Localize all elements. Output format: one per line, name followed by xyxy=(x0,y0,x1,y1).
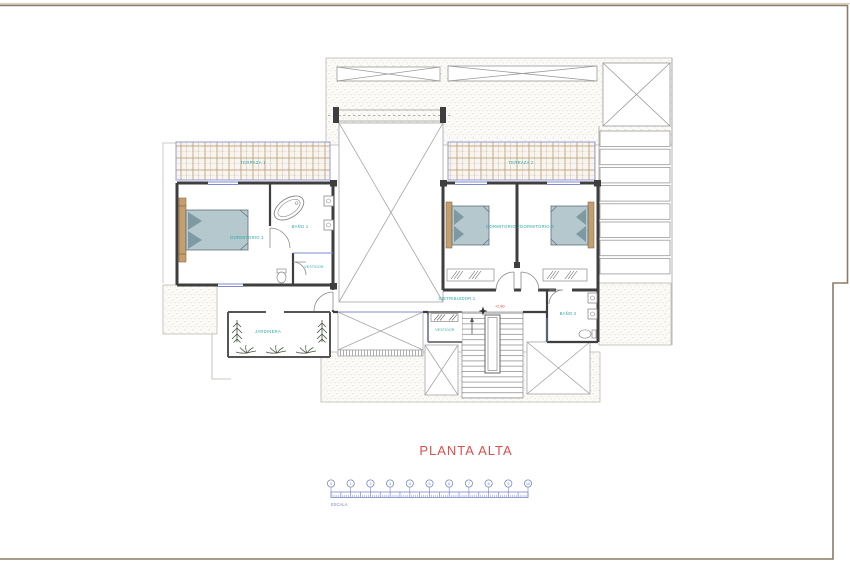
bed-1-icon xyxy=(179,198,248,262)
skylight-square xyxy=(603,63,670,126)
staircase xyxy=(462,312,523,398)
bed-3-icon xyxy=(551,202,594,248)
floor-plan-canvas: TERRAZA 1 TERRAZA 2 DORMITORIO 1 BAÑO 1 … xyxy=(0,0,850,570)
bed-2-icon xyxy=(446,202,489,248)
label-terraza-2: TERRAZA 2 xyxy=(508,160,533,165)
label-vestidor-1: VESTIDOR xyxy=(304,265,324,269)
toilet-icon xyxy=(277,269,286,283)
bathtub-icon xyxy=(270,191,308,225)
label-jardinera: JARDINERA xyxy=(255,329,281,334)
terrace-left-patch xyxy=(163,285,217,334)
sink-icon xyxy=(324,220,334,230)
svg-text:6: 6 xyxy=(448,481,450,486)
svg-text:7: 7 xyxy=(468,481,470,486)
sink-icon xyxy=(588,309,597,319)
sink-icon xyxy=(588,293,597,303)
room-jardinera xyxy=(228,312,330,357)
roof-edge-left xyxy=(163,143,176,283)
drawing-sheet: TERRAZA 1 TERRAZA 2 DORMITORIO 1 BAÑO 1 … xyxy=(0,0,850,570)
svg-text:1: 1 xyxy=(350,481,352,486)
column xyxy=(333,107,339,123)
wardrobes xyxy=(447,269,587,281)
toilet-icon xyxy=(579,330,596,338)
label-vestidor-2: VESTIDOR xyxy=(435,328,455,332)
label-dormitorio-1: DORMITORIO 1 xyxy=(230,235,264,240)
railing xyxy=(338,350,423,356)
label-dormitorio-3: DORMITORIO 3 xyxy=(520,224,554,229)
void-small-right xyxy=(527,342,590,394)
roof-right-patch xyxy=(599,283,671,345)
sink-icon xyxy=(324,196,334,206)
scale-label: ESCALA xyxy=(331,502,348,507)
label-bano-2: BAÑO 2 xyxy=(560,311,577,316)
label-bano-1: BAÑO 1 xyxy=(292,224,309,229)
label-distribuidor: DISTRIBUIDOR 1 xyxy=(438,296,475,301)
plan-title: PLANTA ALTA xyxy=(419,443,512,458)
svg-text:3: 3 xyxy=(389,481,391,486)
label-dormitorio-2: DORMITORIO 2 xyxy=(486,224,520,229)
column xyxy=(440,107,446,123)
bathroom-1-fixtures xyxy=(270,191,334,283)
svg-text:8: 8 xyxy=(488,481,490,486)
room-vestidor-2 xyxy=(428,312,462,342)
louver-slats xyxy=(600,131,670,274)
bathroom-2-fixtures xyxy=(579,293,597,338)
svg-text:9: 9 xyxy=(507,481,509,486)
void-double-height xyxy=(328,107,452,302)
svg-text:2: 2 xyxy=(369,481,371,486)
label-terraza-1: TERRAZA 1 xyxy=(240,160,265,165)
svg-text:5: 5 xyxy=(428,481,430,486)
void-over-living xyxy=(338,312,423,350)
braced-beam-2 xyxy=(448,66,597,81)
void-small-left xyxy=(425,345,458,395)
scale-bar: 012345678910 xyxy=(327,480,531,498)
level-annotation: +2.80 xyxy=(495,305,505,309)
braced-beam-1 xyxy=(337,67,440,81)
